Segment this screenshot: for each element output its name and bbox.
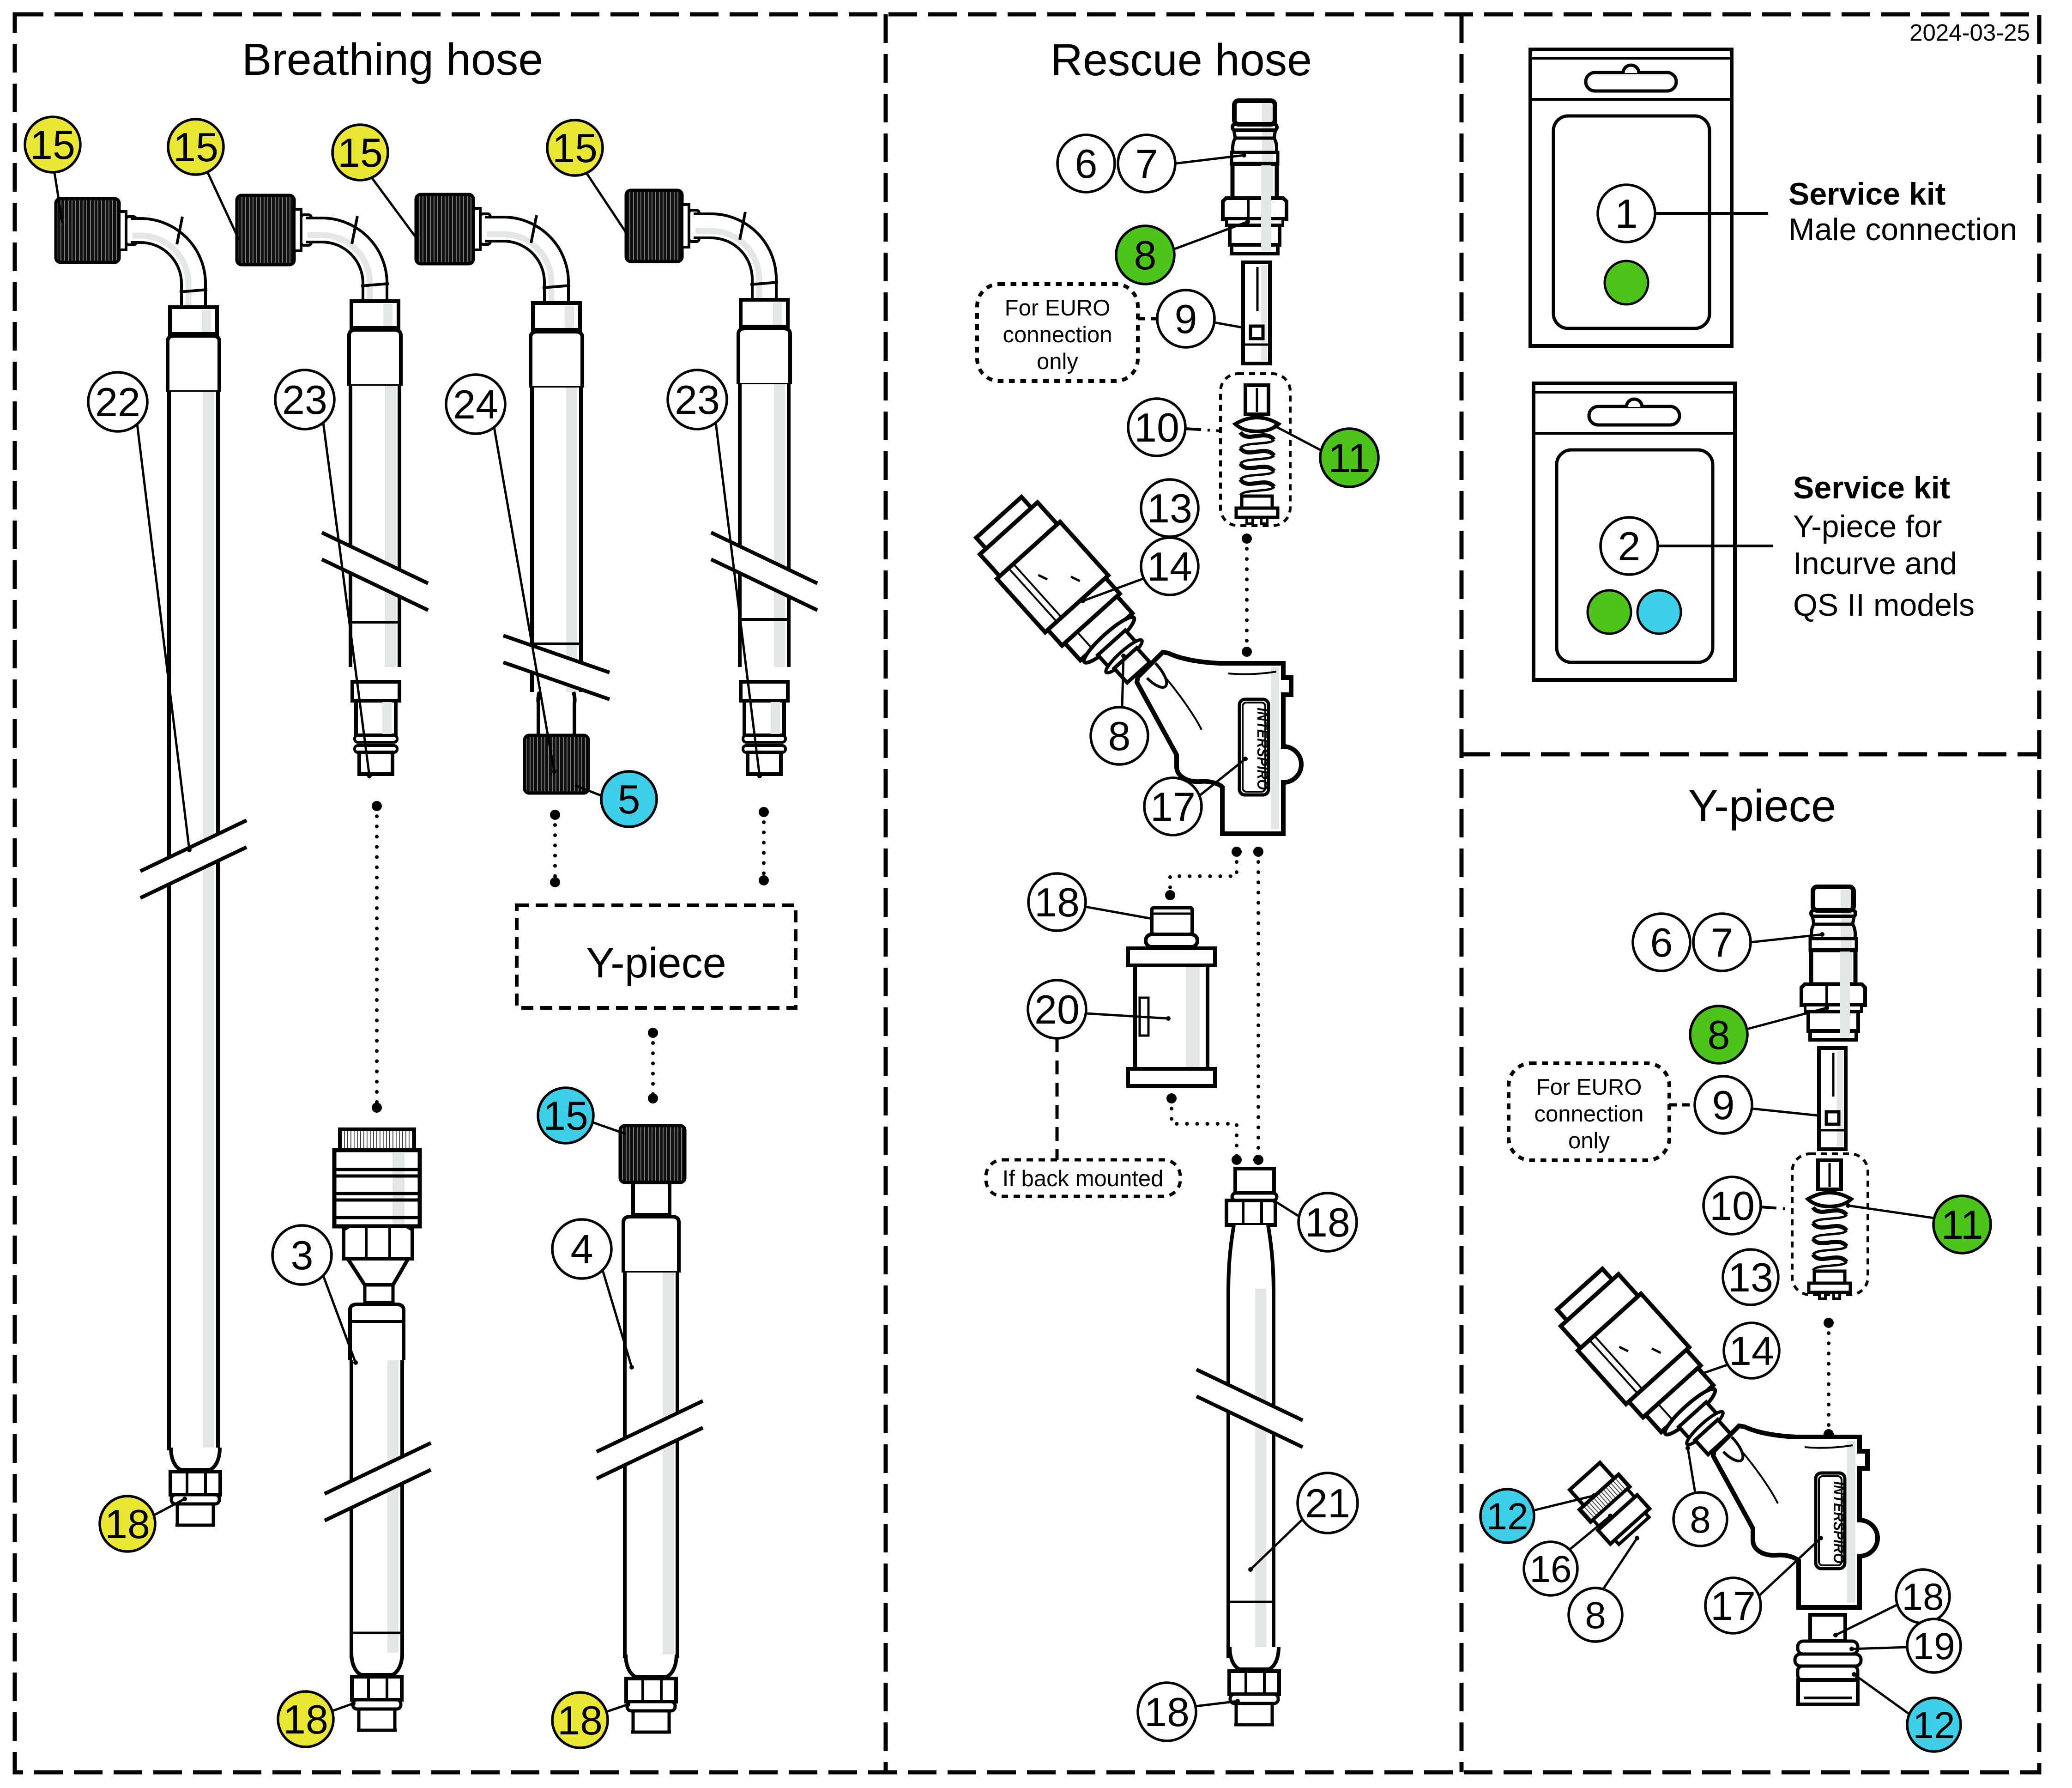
svg-text:Incurve and: Incurve and [1793,546,1957,581]
svg-text:INTERSPIRO: INTERSPIRO [1254,708,1271,790]
svg-text:If back mounted: If back mounted [1003,1166,1164,1191]
svg-text:20: 20 [1034,987,1080,1032]
svg-text:9: 9 [1175,296,1197,342]
svg-text:15: 15 [173,124,218,170]
svg-text:18: 18 [1305,1200,1350,1245]
svg-text:10: 10 [1134,405,1179,450]
svg-text:Service kit: Service kit [1793,470,1950,505]
svg-text:3: 3 [291,1232,314,1278]
svg-text:Service kit: Service kit [1788,176,1945,212]
svg-text:18: 18 [1144,1689,1190,1735]
svg-text:Rescue hose: Rescue hose [1051,35,1312,85]
svg-text:18: 18 [557,1697,603,1743]
svg-text:21: 21 [1305,1480,1350,1526]
svg-text:15: 15 [30,122,75,168]
svg-text:6: 6 [1650,920,1673,965]
svg-text:15: 15 [338,130,383,176]
svg-text:13: 13 [1728,1255,1773,1300]
svg-text:1: 1 [1615,191,1638,236]
svg-text:4: 4 [571,1226,593,1272]
svg-text:For EURO: For EURO [1005,296,1111,321]
svg-text:7: 7 [1136,141,1158,187]
svg-text:Y-piece: Y-piece [1688,781,1836,831]
svg-text:8: 8 [1108,713,1131,759]
svg-text:10: 10 [1710,1183,1755,1229]
svg-text:5: 5 [618,776,640,822]
svg-text:14: 14 [1729,1328,1774,1374]
svg-text:For EURO: For EURO [1536,1075,1642,1100]
svg-text:12: 12 [1486,1496,1528,1538]
svg-text:9: 9 [1712,1082,1735,1128]
svg-text:14: 14 [1147,544,1192,589]
svg-text:22: 22 [95,379,140,425]
svg-text:23: 23 [675,377,720,423]
svg-text:15: 15 [552,125,598,171]
svg-text:Male connection: Male connection [1788,212,2017,247]
svg-text:18: 18 [105,1501,150,1547]
svg-text:19: 19 [1913,1625,1955,1667]
svg-text:18: 18 [1902,1576,1944,1618]
svg-text:16: 16 [1529,1548,1571,1590]
svg-text:connection: connection [1534,1102,1643,1127]
svg-text:17: 17 [1150,784,1196,830]
svg-text:8: 8 [1134,232,1157,278]
svg-text:QS II models: QS II models [1793,588,1975,623]
svg-text:23: 23 [282,377,327,423]
svg-text:Y-piece for: Y-piece for [1793,509,1942,544]
svg-text:8: 8 [1585,1594,1606,1636]
svg-text:13: 13 [1147,485,1192,531]
svg-text:24: 24 [453,382,498,427]
svg-text:6: 6 [1075,141,1098,187]
svg-text:2024-03-25: 2024-03-25 [1909,19,2030,46]
svg-text:17: 17 [1710,1583,1756,1629]
svg-text:18: 18 [1034,879,1080,925]
svg-text:11: 11 [1328,435,1370,481]
svg-text:2: 2 [1618,523,1641,569]
svg-text:connection: connection [1003,322,1112,347]
svg-text:11: 11 [1941,1202,1983,1248]
svg-text:only: only [1568,1128,1610,1153]
svg-text:8: 8 [1690,1499,1711,1541]
svg-text:only: only [1037,349,1078,374]
svg-text:15: 15 [543,1093,588,1139]
svg-text:Breathing hose: Breathing hose [242,34,544,85]
svg-text:18: 18 [283,1697,328,1742]
svg-text:8: 8 [1708,1012,1730,1058]
svg-text:7: 7 [1711,920,1734,965]
svg-text:Y-piece: Y-piece [586,939,726,987]
svg-text:INTERSPIRO: INTERSPIRO [1830,1481,1848,1564]
svg-text:12: 12 [1913,1704,1955,1746]
